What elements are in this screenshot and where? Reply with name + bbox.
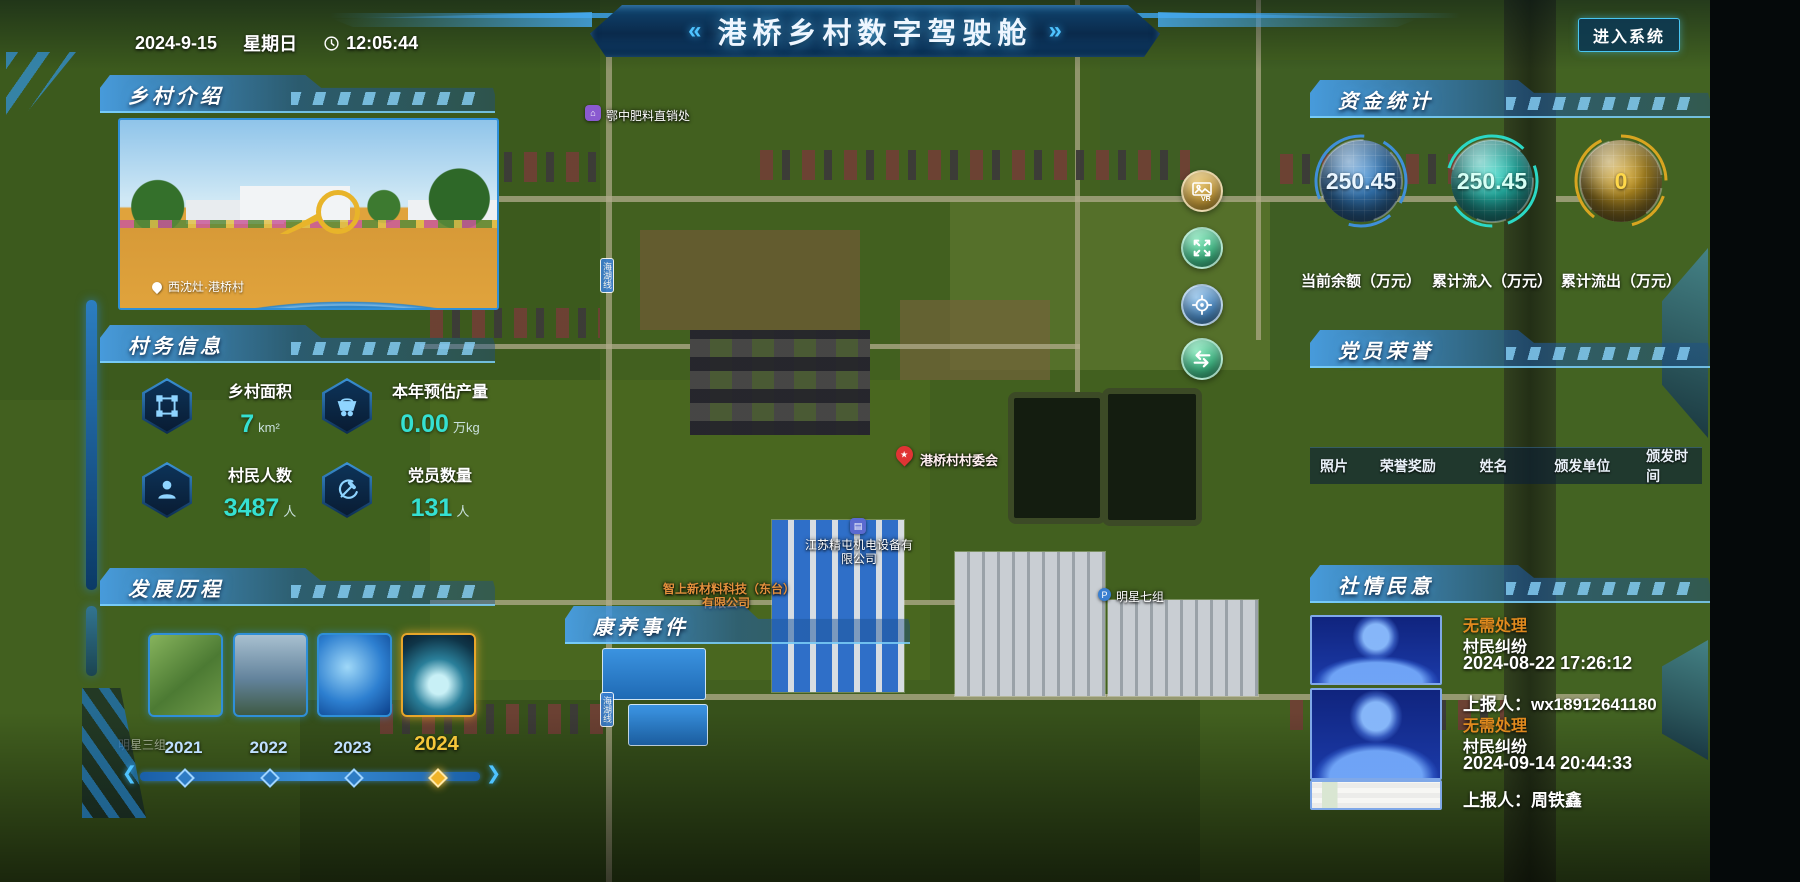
stat-estimated-yield: 本年预估产量 0.00万kg <box>322 378 496 439</box>
stat-icon-frame <box>322 462 372 518</box>
col-award: 荣誉奖励 <box>1380 456 1480 476</box>
time-text: 12:05:44 <box>346 33 418 54</box>
history-year[interactable]: 2022 <box>233 738 304 758</box>
map-blue-pond <box>628 704 708 746</box>
map-brown-field <box>900 300 1050 380</box>
stat-value: 131 <box>411 494 453 523</box>
gauge-total-outflow: 0 <box>1573 133 1669 229</box>
left-edge-decor <box>86 606 97 676</box>
history-thumb-2022[interactable] <box>233 633 308 717</box>
panel-header-honors: 党员荣誉 <box>1310 330 1710 368</box>
weekday-text: 星期日 <box>243 30 297 56</box>
map-pond <box>1008 392 1106 524</box>
swap-arrows-icon <box>1191 348 1213 370</box>
map-road <box>1075 0 1080 430</box>
history-thumb-2024[interactable] <box>401 633 476 717</box>
gauge-value: 250.45 <box>1444 133 1540 229</box>
panel-header-stripes <box>291 585 481 598</box>
col-photo: 照片 <box>1310 456 1380 476</box>
location-pin-icon <box>150 279 164 293</box>
stat-value: 0.00 <box>400 410 449 439</box>
map-road <box>606 50 612 882</box>
panel-title: 乡村介绍 <box>128 80 224 109</box>
sentiment-reporter: 上报人：周铁鑫 <box>1463 786 1582 811</box>
stat-icon-frame <box>142 462 192 518</box>
gauge-label-balance: 当前余额（万元） <box>1286 270 1436 291</box>
datetime-bar: 2024-9-15 星期日 12:05:44 <box>135 30 418 56</box>
map-label-village-committee[interactable]: 港桥村村委会 <box>920 450 998 469</box>
fullscreen-button[interactable] <box>1181 227 1223 269</box>
road-shield-haihu: 海湖线 <box>600 692 614 727</box>
sentiment-thumb[interactable] <box>1310 688 1442 780</box>
panel-title: 社情民意 <box>1338 570 1434 599</box>
map-villa-cluster <box>690 330 870 435</box>
history-thumb-2023[interactable] <box>317 633 392 717</box>
panel-header-funds: 资金统计 <box>1310 80 1710 118</box>
stat-unit: 人 <box>283 501 296 520</box>
panel-title: 发展历程 <box>128 573 224 602</box>
panel-header-affairs: 村务信息 <box>100 325 495 363</box>
sentiment-thumb-document[interactable] <box>1310 780 1442 810</box>
panel-header-intro: 乡村介绍 <box>100 75 495 113</box>
gauge-total-inflow: 250.45 <box>1444 133 1540 229</box>
stat-icon-frame <box>142 378 192 434</box>
stat-label: 乡村面积 <box>228 378 292 402</box>
panel-header-stripes <box>291 342 481 355</box>
map-pond <box>1102 388 1202 526</box>
dashboard: ⌂ 鄂中肥料直销处 ★ 港桥村村委会 ▤ 江苏精屯机电设备有限公司 智上新材料科… <box>0 0 1800 882</box>
panel-header-stripes <box>1506 582 1696 595</box>
col-name: 姓名 <box>1480 456 1555 476</box>
photo-caption: 西沈灶·港桥村 <box>152 278 244 295</box>
company-icon[interactable]: ▤ <box>850 518 866 534</box>
vr-image-icon: VR <box>1190 179 1214 203</box>
panel-title: 康养事件 <box>593 611 689 640</box>
map-blue-pond <box>602 648 706 700</box>
panel-header-history: 发展历程 <box>100 568 495 606</box>
panel-title: 党员荣誉 <box>1338 335 1434 364</box>
stat-value: 3487 <box>224 494 280 523</box>
vr-panorama-button[interactable]: VR <box>1181 170 1223 212</box>
locate-button[interactable] <box>1181 284 1223 326</box>
stat-unit: 人 <box>456 501 469 520</box>
stat-villager-count: 村民人数 3487人 <box>142 462 316 523</box>
panel-title: 资金统计 <box>1338 85 1434 114</box>
gauge-label-outflow: 累计流出（万元） <box>1546 270 1696 291</box>
stat-label: 本年预估产量 <box>392 378 488 402</box>
left-edge-decor <box>86 300 97 590</box>
sentiment-datetime: 2024-08-22 17:26:12 <box>1463 653 1632 674</box>
map-warehouse-roof <box>1108 600 1258 696</box>
col-issuer: 颁发单位 <box>1554 456 1646 476</box>
clock-icon <box>323 35 340 52</box>
date-text: 2024-9-15 <box>135 33 217 54</box>
map-houses <box>760 150 1190 180</box>
stat-party-members: 党员数量 131人 <box>322 462 496 523</box>
panel-header-stripes <box>291 92 481 105</box>
sentiment-thumb[interactable] <box>1310 615 1442 685</box>
map-road <box>1256 0 1261 340</box>
panel-header-sentiment: 社情民意 <box>1310 565 1710 603</box>
stat-unit: km² <box>258 420 280 435</box>
stat-icon-frame <box>322 378 372 434</box>
stat-value: 7 <box>240 410 254 439</box>
sentiment-datetime: 2024-09-14 20:44:33 <box>1463 753 1632 774</box>
timeline-next-arrow[interactable]: ❯ <box>486 763 501 784</box>
crosshair-icon <box>1191 294 1213 316</box>
gauge-current-balance: 250.45 <box>1313 133 1409 229</box>
panel-title: 村务信息 <box>128 330 224 359</box>
history-year[interactable]: 2021 <box>148 738 219 758</box>
svg-text:VR: VR <box>1201 196 1211 203</box>
left-chevron-icon: « <box>688 17 701 45</box>
stat-label: 村民人数 <box>228 462 292 486</box>
fertilizer-shop-icon[interactable]: ⌂ <box>585 105 601 121</box>
map-label-jingtun-company[interactable]: 江苏精屯机电设备有限公司 <box>800 538 918 566</box>
road-shield-haihu: 海湖线 <box>600 258 614 293</box>
screen-black-bar <box>1710 0 1800 882</box>
village-intro-photo[interactable]: 西沈灶·港桥村 <box>118 118 499 310</box>
switch-view-button[interactable] <box>1181 338 1223 380</box>
stat-village-area: 乡村面积 7km² <box>142 378 316 439</box>
area-icon <box>154 393 180 419</box>
cart-icon <box>334 393 360 419</box>
enter-system-button[interactable]: 进入系统 <box>1578 18 1680 52</box>
photo-arch-sculpture <box>316 190 360 234</box>
panel-header-stripes <box>1506 347 1696 360</box>
person-icon <box>154 477 180 503</box>
title-banner: « 港桥乡村数字驾驶舱 » <box>590 5 1160 57</box>
gauge-label-inflow: 累计流入（万元） <box>1417 270 1567 291</box>
page-title: 港桥乡村数字驾驶舱 <box>717 10 1032 52</box>
photo-playground <box>120 228 497 308</box>
map-label-mingxing7[interactable]: 明星七组 <box>1116 588 1164 605</box>
right-chevron-icon: » <box>1049 17 1062 45</box>
expand-arrows-icon <box>1191 237 1213 259</box>
honors-table-header: 照片 荣誉奖励 姓名 颁发单位 颁发时间 <box>1310 447 1702 484</box>
hammer-sickle-icon <box>334 477 360 503</box>
history-year[interactable]: 2023 <box>317 738 388 758</box>
panel-header-health-events: 康养事件 <box>565 606 910 644</box>
history-year-active[interactable]: 2024 <box>401 733 472 756</box>
gauge-value: 0 <box>1573 133 1669 229</box>
stat-unit: 万kg <box>453 417 480 436</box>
map-brown-field <box>640 230 860 330</box>
panel-header-stripes <box>1506 97 1696 110</box>
col-issue-time: 颁发时间 <box>1646 446 1702 486</box>
gauge-value: 250.45 <box>1313 133 1409 229</box>
history-thumb-2021[interactable] <box>148 633 223 717</box>
map-label-fertilizer-shop[interactable]: 鄂中肥料直销处 <box>606 107 690 124</box>
mingxing7-icon[interactable]: P <box>1098 588 1111 601</box>
photo-caption-text: 西沈灶·港桥村 <box>168 278 244 295</box>
stat-label: 党员数量 <box>408 462 472 486</box>
map-warehouse-roof <box>955 552 1105 696</box>
timeline-prev-arrow[interactable]: ❮ <box>122 763 137 784</box>
